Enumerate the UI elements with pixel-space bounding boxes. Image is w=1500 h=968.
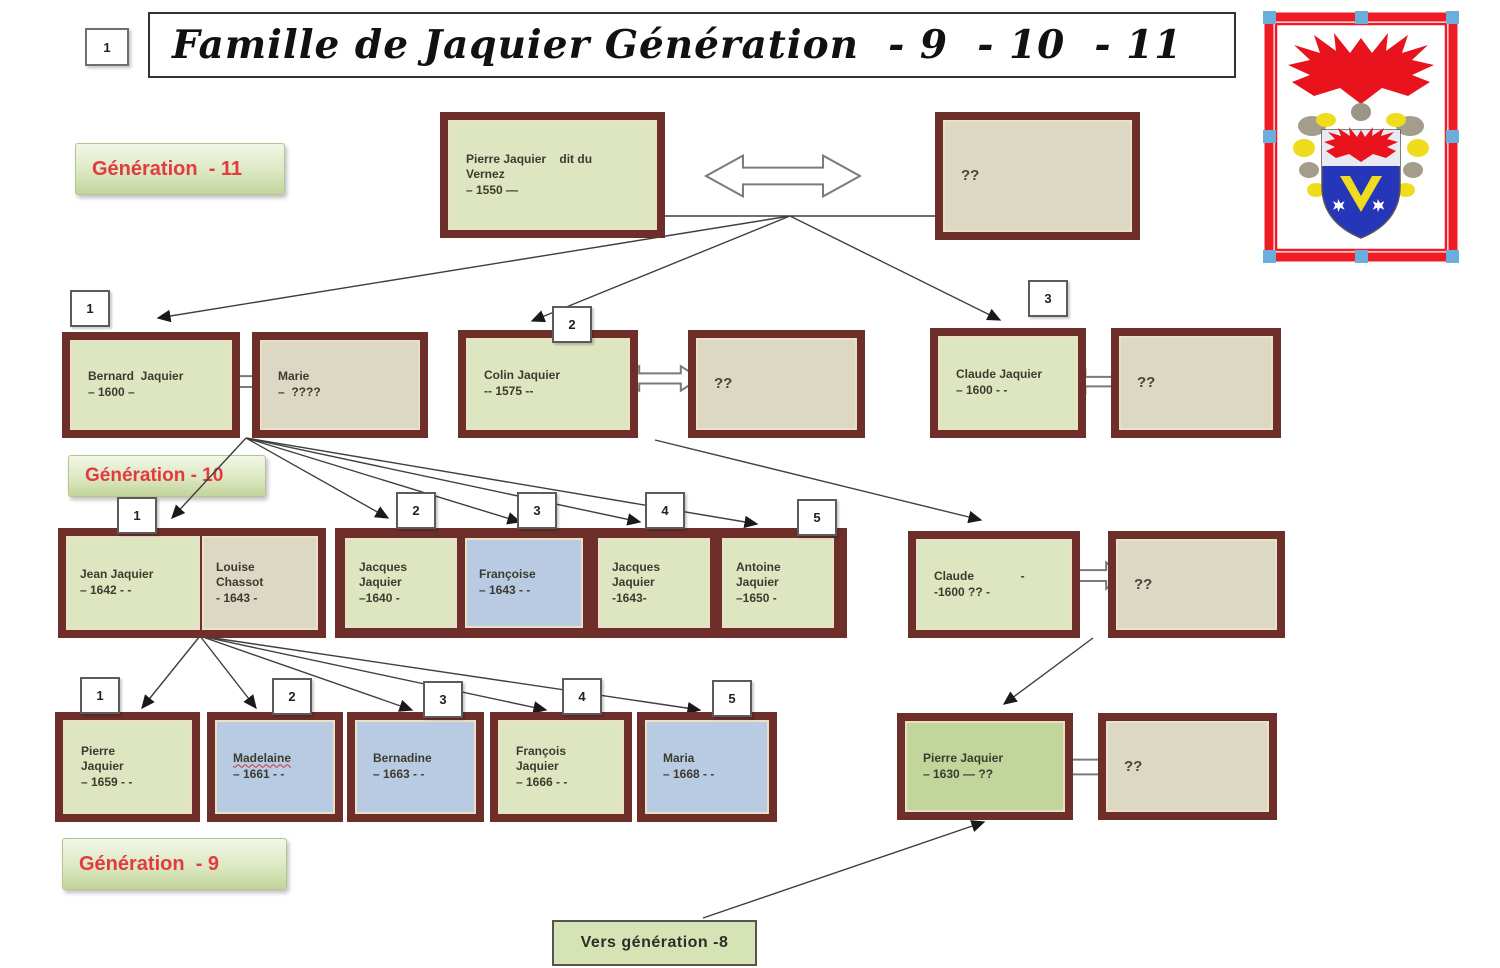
marker-child10-1: 1: [117, 497, 157, 534]
person-dates: -- 1575 --: [484, 384, 622, 400]
page-title: Famille de Jaquier Génération - 9 - 10 -…: [172, 22, 1182, 68]
person-box-bernard-jaquier: Bernard Jaquier – 1600 –: [62, 332, 240, 438]
marker-child9-4: 4: [562, 678, 602, 715]
person-box-francoise: Françoise – 1643 - -: [465, 538, 583, 628]
person-name: ??: [1134, 575, 1269, 595]
marker-child9-1: 1: [80, 677, 120, 714]
person-box-claude-1600: Claude - -1600 ?? -: [908, 531, 1080, 638]
person-dates: – 1600 - -: [956, 383, 1070, 399]
person-box-antoine-jaquier: Antoine Jaquier –1650 -: [722, 538, 834, 628]
person-name: François Jaquier: [516, 744, 616, 775]
person-name: Jean Jaquier: [80, 567, 194, 583]
person-name: ??: [714, 374, 849, 394]
marker-child10-3: 3: [517, 492, 557, 529]
person-dates: - 1643 -: [216, 591, 312, 607]
person-dates: -1600 ?? -: [934, 585, 1064, 601]
page-number-marker: 1: [85, 28, 129, 66]
person-name: Bernadine: [373, 751, 468, 767]
person-box-colin-jaquier: Colin Jaquier -- 1575 --: [458, 330, 638, 438]
person-dates: –1650 -: [736, 591, 828, 607]
marker-child9-3: 3: [423, 681, 463, 718]
person-name: ??: [1137, 373, 1265, 393]
marker-child10-5: 5: [797, 499, 837, 536]
person-box-colin-unknown-spouse: ??: [688, 330, 865, 438]
marker-couple-2: 2: [552, 306, 592, 343]
marker-couple-1: 1: [70, 290, 110, 327]
to-generation-8-box: Vers génération -8: [552, 920, 757, 966]
person-box-claude2-unknown-spouse: ??: [1108, 531, 1285, 638]
person-box-maria: Maria – 1668 - -: [637, 712, 777, 822]
person-name: Maria: [663, 751, 761, 767]
person-name: Marie: [278, 369, 412, 385]
marker-child10-4: 4: [645, 492, 685, 529]
marriage-arrow-gen11: [706, 156, 860, 197]
person-dates: – 1666 - -: [516, 775, 616, 791]
person-name: Louise Chassot: [216, 560, 312, 591]
person-box-pierre-jaquier-1659: Pierre Jaquier – 1659 - -: [55, 712, 200, 822]
person-name: Pierre Jaquier dit du Vernez: [466, 152, 649, 183]
person-box-pierre-jaquier-1630: Pierre Jaquier – 1630 — ??: [897, 713, 1073, 820]
person-dates: – 1630 — ??: [923, 767, 1057, 783]
person-box-marie: Marie – ????: [252, 332, 428, 438]
person-name: Jacques Jaquier: [359, 560, 451, 591]
person-name: Colin Jaquier: [484, 368, 622, 384]
person-name: Claude -: [934, 569, 1064, 585]
person-dates: – 1550 —: [466, 183, 649, 199]
person-box-pierre-jaquier-vernez: Pierre Jaquier dit du Vernez – 1550 —: [440, 112, 665, 238]
person-box-gen11-unknown-spouse: ??: [935, 112, 1140, 240]
person-box-jacques-jaquier-1640: Jacques Jaquier –1640 -: [345, 538, 457, 628]
person-box-madelaine: Madelaine – 1661 - -: [207, 712, 343, 822]
marker-child9-5: 5: [712, 680, 752, 717]
person-box-claude-jaquier: Claude Jaquier – 1600 - -: [930, 328, 1086, 438]
person-name: Claude Jaquier: [956, 367, 1070, 383]
person-box-francois-jaquier: François Jaquier – 1666 - -: [490, 712, 632, 822]
person-name: Antoine Jaquier: [736, 560, 828, 591]
person-name: Pierre Jaquier: [923, 751, 1057, 767]
person-dates: – 1661 - -: [233, 767, 327, 783]
coat-of-arms: [1260, 8, 1462, 266]
person-dates: – 1642 - -: [80, 583, 194, 599]
person-dates: – 1668 - -: [663, 767, 761, 783]
person-dates: -1643-: [612, 591, 704, 607]
person-dates: – 1659 - -: [81, 775, 184, 791]
person-dates: – 1663 - -: [373, 767, 468, 783]
title-box: Famille de Jaquier Génération - 9 - 10 -…: [148, 12, 1236, 78]
person-name: Jacques Jaquier: [612, 560, 704, 591]
marker-couple-3: 3: [1028, 280, 1068, 317]
person-name: Pierre Jaquier: [81, 744, 184, 775]
person-box-louise-chassot: Louise Chassot - 1643 -: [202, 536, 318, 630]
marker-child10-2: 2: [396, 492, 436, 529]
person-dates: – 1643 - -: [479, 583, 577, 599]
couple-group-jean-louise: Jean Jaquier – 1642 - - Louise Chassot -…: [58, 528, 326, 638]
person-dates: – ????: [278, 385, 412, 401]
person-name: Madelaine: [233, 751, 327, 767]
person-dates: – 1600 –: [88, 385, 224, 401]
person-name: ??: [1124, 757, 1261, 777]
children-group-gen10: Jacques Jaquier –1640 - Françoise – 1643…: [335, 528, 847, 638]
family-tree-page: 1 Famille de Jaquier Génération - 9 - 10…: [0, 0, 1500, 968]
person-dates: –1640 -: [359, 591, 451, 607]
person-box-pierre1630-unknown-spouse: ??: [1098, 713, 1277, 820]
person-box-jacques-jaquier-1643: Jacques Jaquier -1643-: [598, 538, 710, 628]
person-name: Françoise: [479, 567, 577, 583]
person-box-bernadine: Bernadine – 1663 - -: [347, 712, 484, 822]
marker-child9-2: 2: [272, 678, 312, 715]
person-box-claude-unknown-spouse: ??: [1111, 328, 1281, 438]
person-name: Bernard Jaquier: [88, 369, 224, 385]
person-name: ??: [961, 166, 1124, 186]
person-box-jean-jaquier: Jean Jaquier – 1642 - -: [66, 536, 200, 630]
